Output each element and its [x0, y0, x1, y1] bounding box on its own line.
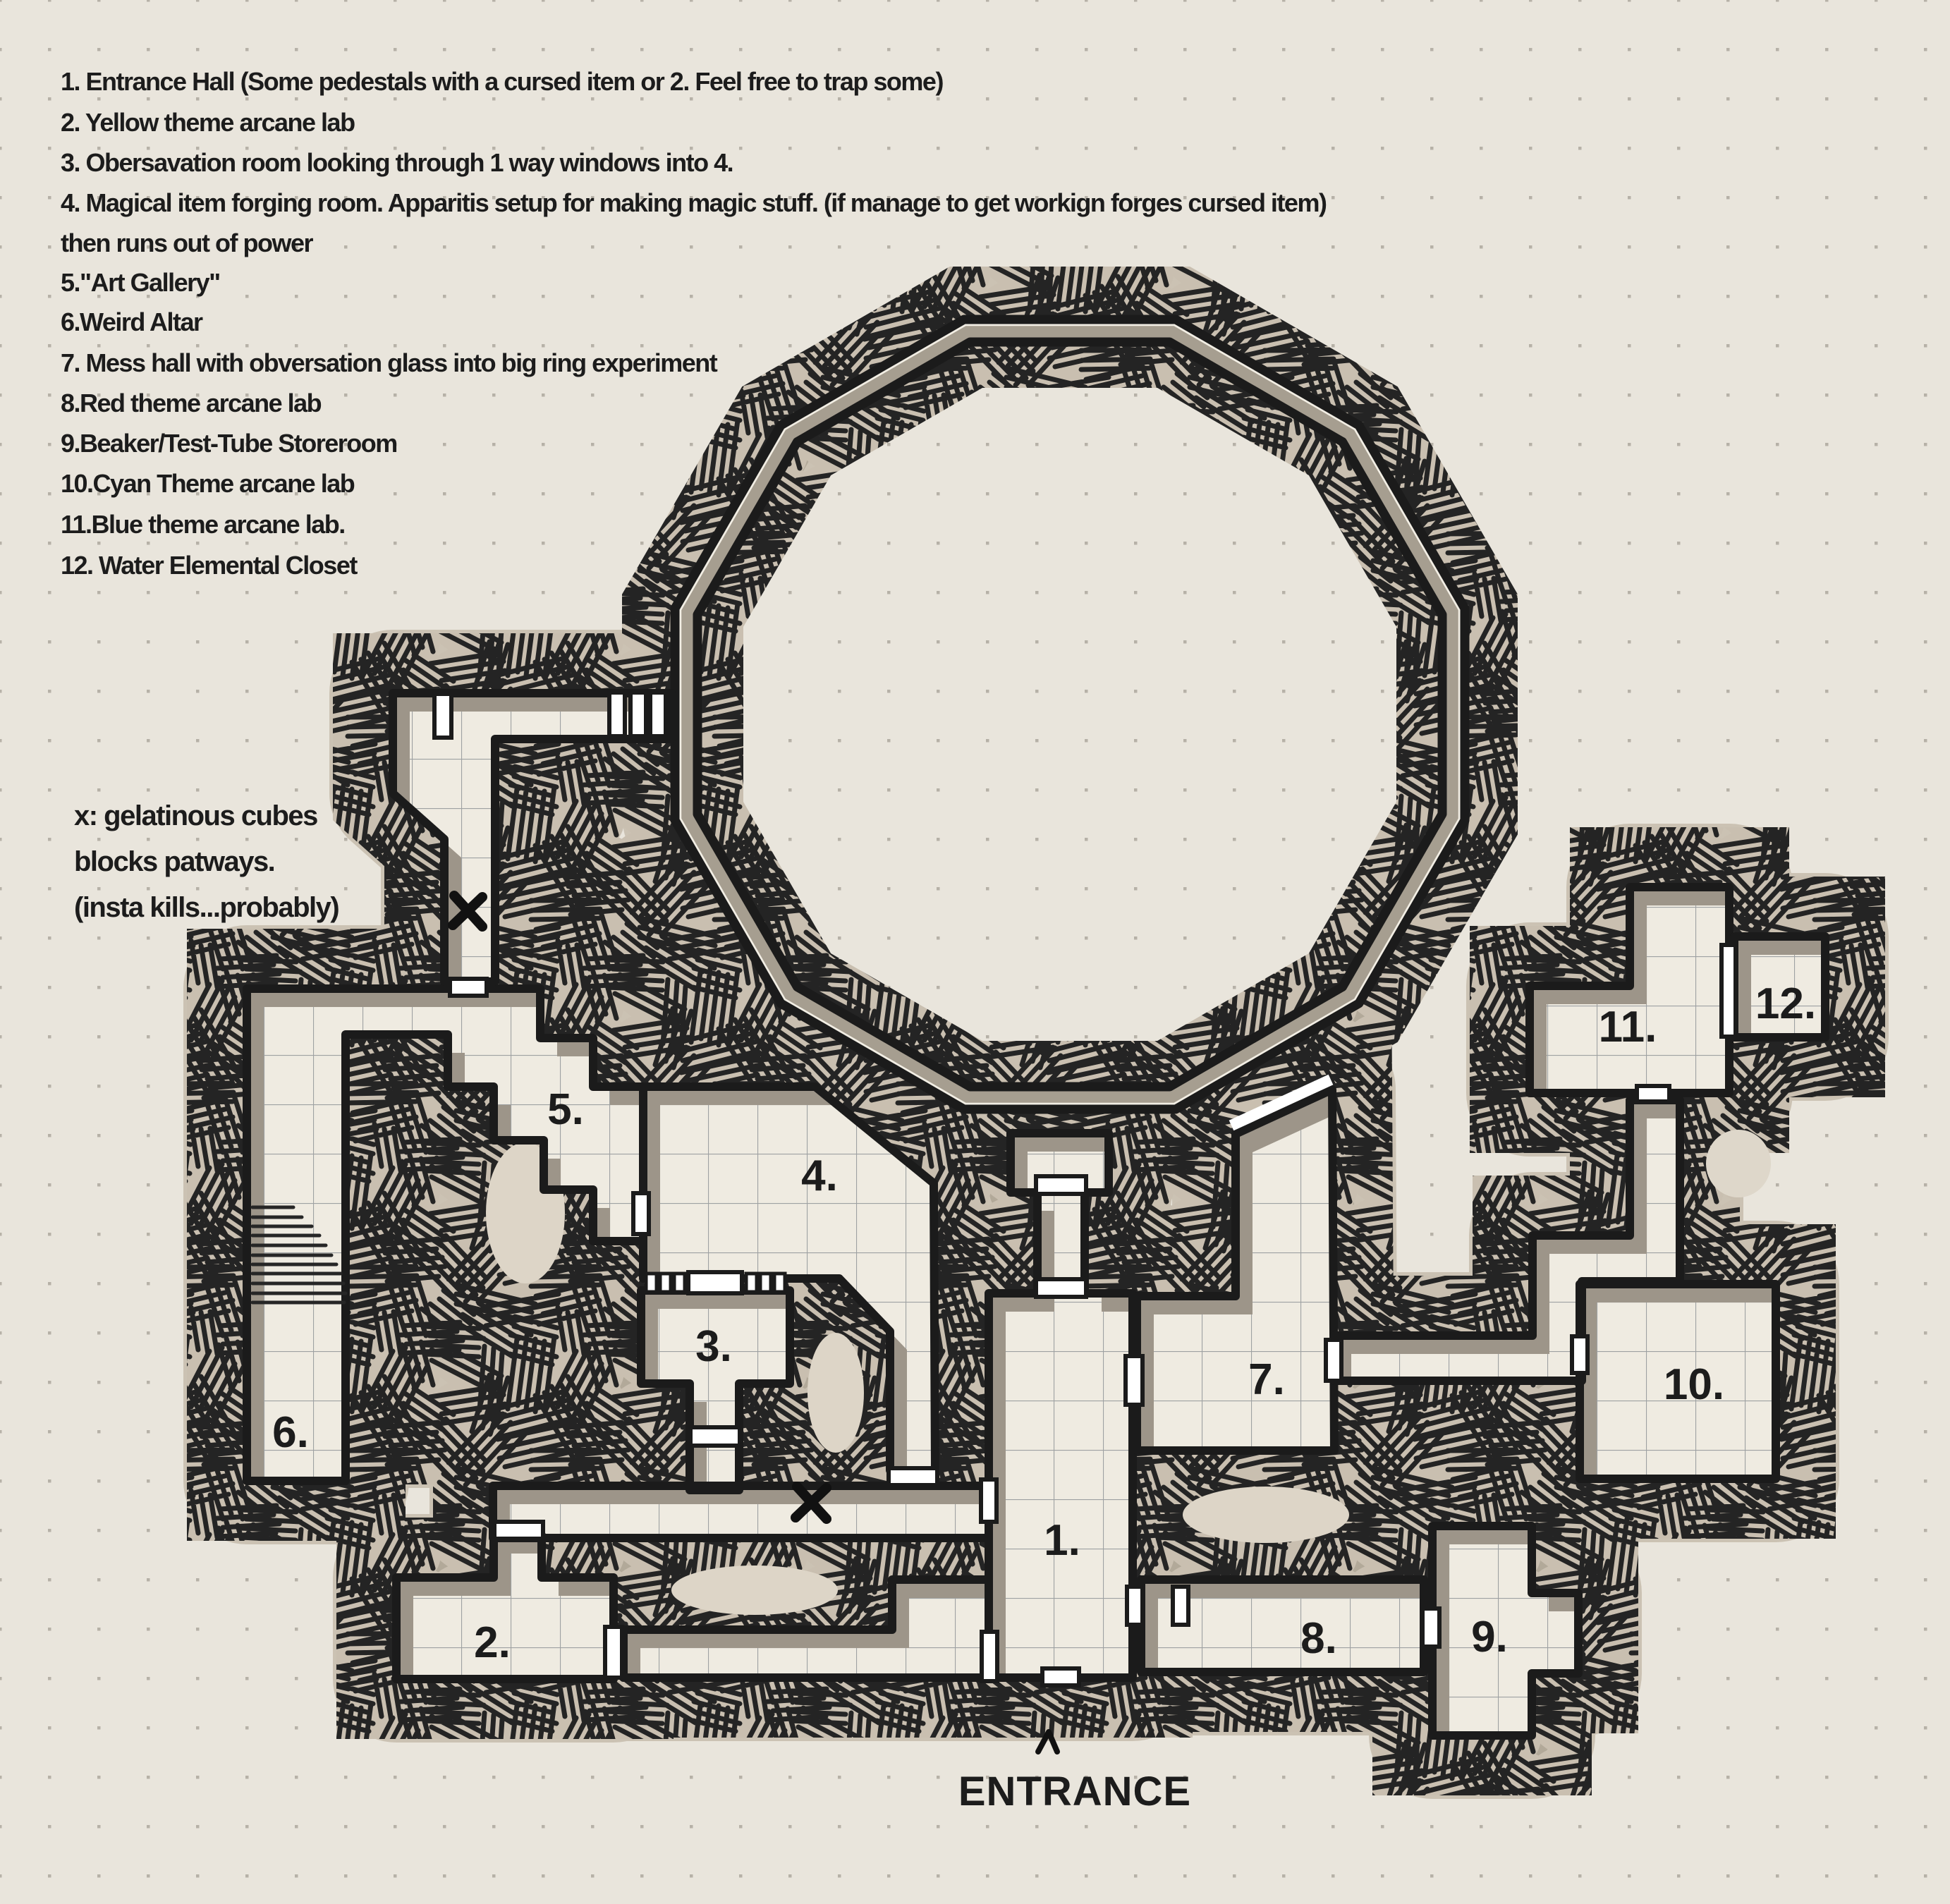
svg-text:1. Entrance Hall (Some pedesta: 1. Entrance Hall (Some pedestals with a …	[61, 67, 943, 96]
svg-text:3.: 3.	[695, 1322, 732, 1371]
svg-text:1.: 1.	[1044, 1516, 1080, 1565]
svg-text:ENTRANCE: ENTRANCE	[958, 1769, 1191, 1814]
svg-text:7. Mess hall with obversation: 7. Mess hall with obversation glass into…	[61, 348, 718, 377]
svg-text:7.: 7.	[1248, 1355, 1285, 1404]
svg-text:6.: 6.	[272, 1408, 309, 1457]
svg-text:2.: 2.	[474, 1618, 511, 1667]
svg-text:(insta kills...probably): (insta kills...probably)	[74, 892, 339, 923]
svg-text:11.Blue theme arcane lab.: 11.Blue theme arcane lab.	[61, 510, 345, 539]
svg-text:x: gelatinous cubes: x: gelatinous cubes	[74, 800, 317, 831]
svg-text:4.: 4.	[801, 1152, 838, 1200]
svg-text:9.: 9.	[1471, 1613, 1508, 1661]
svg-text:4. Magical item forging room.: 4. Magical item forging room. Apparitis …	[61, 188, 1327, 217]
svg-text:2. Yellow theme arcane lab: 2. Yellow theme arcane lab	[61, 108, 355, 137]
svg-text:9.Beaker/Test-Tube Storeroom: 9.Beaker/Test-Tube Storeroom	[61, 429, 397, 458]
svg-text:5.: 5.	[547, 1085, 584, 1134]
svg-text:10.: 10.	[1664, 1360, 1724, 1409]
svg-text:12.: 12.	[1755, 980, 1816, 1028]
svg-text:11.: 11.	[1599, 1003, 1657, 1051]
svg-text:then runs out of power: then runs out of power	[61, 228, 313, 257]
svg-text:12. Water Elemental Closet: 12. Water Elemental Closet	[61, 551, 358, 580]
svg-text:5."Art Gallery": 5."Art Gallery"	[61, 268, 220, 297]
svg-text:8.: 8.	[1300, 1614, 1337, 1663]
svg-text:blocks patways.: blocks patways.	[74, 846, 274, 877]
svg-text:10.Cyan Theme arcane lab: 10.Cyan Theme arcane lab	[61, 469, 355, 498]
svg-text:6.Weird Altar: 6.Weird Altar	[61, 307, 203, 336]
svg-text:8.Red theme arcane lab: 8.Red theme arcane lab	[61, 389, 322, 417]
svg-text:3. Obersavation room looking t: 3. Obersavation room looking through 1 w…	[61, 148, 733, 177]
